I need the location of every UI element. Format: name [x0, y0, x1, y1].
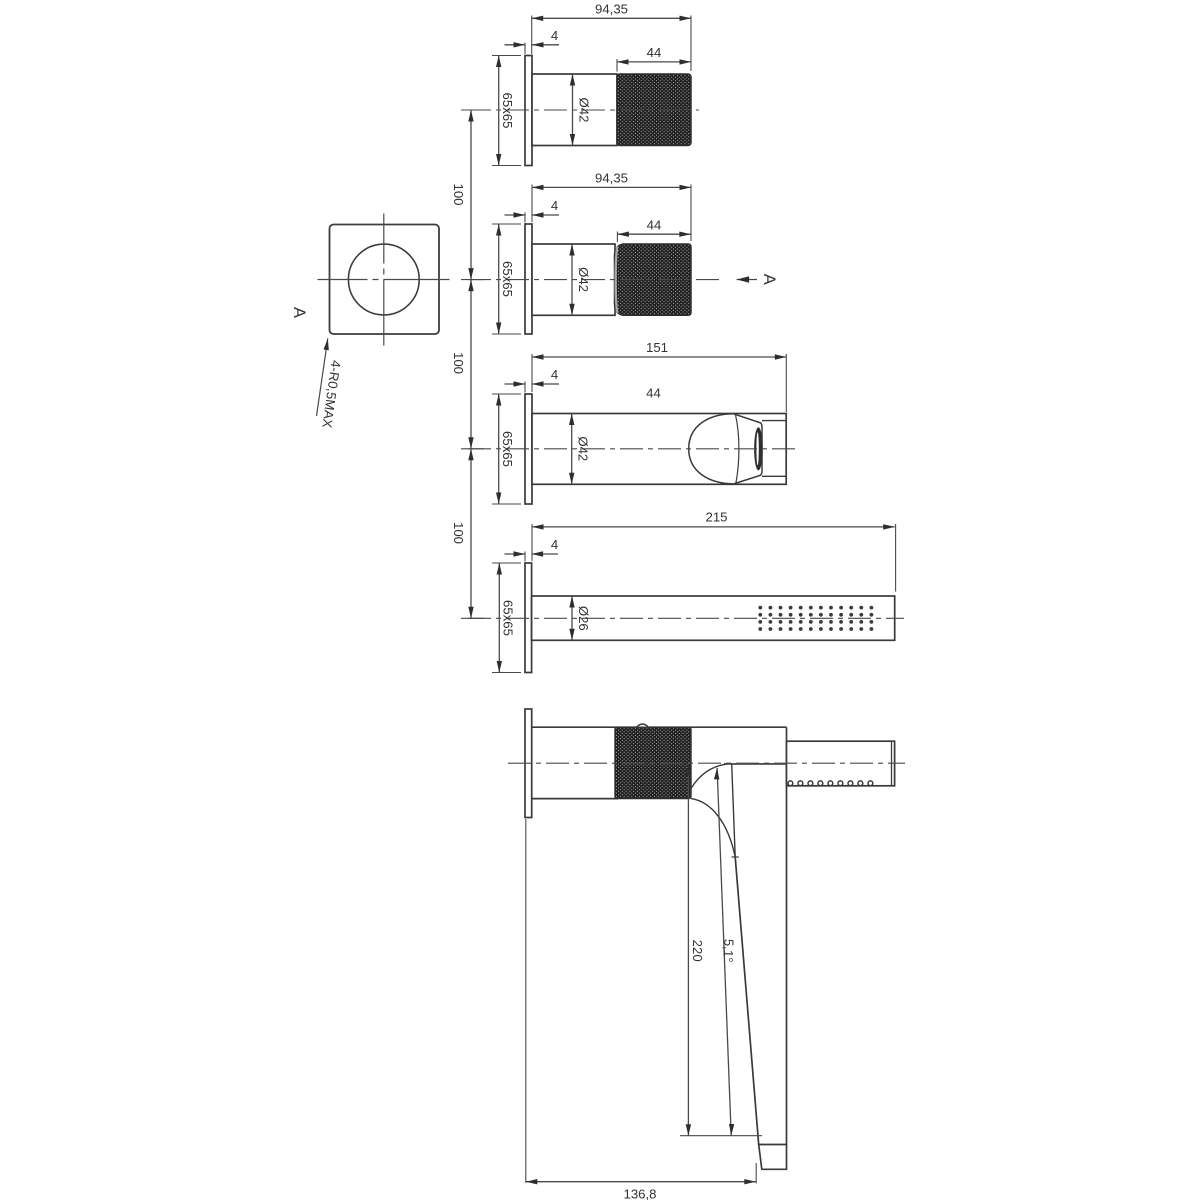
svg-text:65x65: 65x65 [500, 261, 515, 297]
svg-text:A: A [290, 307, 308, 318]
svg-text:Ø42: Ø42 [577, 98, 592, 123]
svg-text:65x65: 65x65 [500, 431, 515, 467]
svg-text:100: 100 [451, 183, 466, 205]
svg-text:A: A [760, 274, 778, 285]
svg-text:136,8: 136,8 [623, 1187, 656, 1200]
svg-text:65x65: 65x65 [500, 93, 515, 129]
svg-text:215: 215 [705, 510, 727, 525]
svg-text:Ø42: Ø42 [576, 267, 591, 292]
svg-text:Ø42: Ø42 [576, 436, 591, 461]
svg-text:4: 4 [551, 367, 558, 382]
svg-text:65x65: 65x65 [501, 600, 516, 636]
svg-text:94,35: 94,35 [595, 171, 628, 186]
svg-text:151: 151 [646, 340, 668, 355]
svg-text:100: 100 [451, 522, 466, 544]
svg-text:4: 4 [551, 537, 558, 552]
svg-text:44: 44 [647, 45, 662, 60]
svg-text:100: 100 [451, 352, 466, 374]
svg-text:5,1°: 5,1° [721, 939, 737, 963]
svg-text:4: 4 [551, 198, 558, 213]
svg-text:44: 44 [647, 218, 662, 233]
svg-text:220: 220 [690, 940, 705, 962]
svg-text:44: 44 [646, 386, 661, 401]
svg-text:4: 4 [551, 28, 558, 43]
svg-text:94,35: 94,35 [595, 2, 628, 17]
svg-text:Ø26: Ø26 [576, 606, 591, 631]
